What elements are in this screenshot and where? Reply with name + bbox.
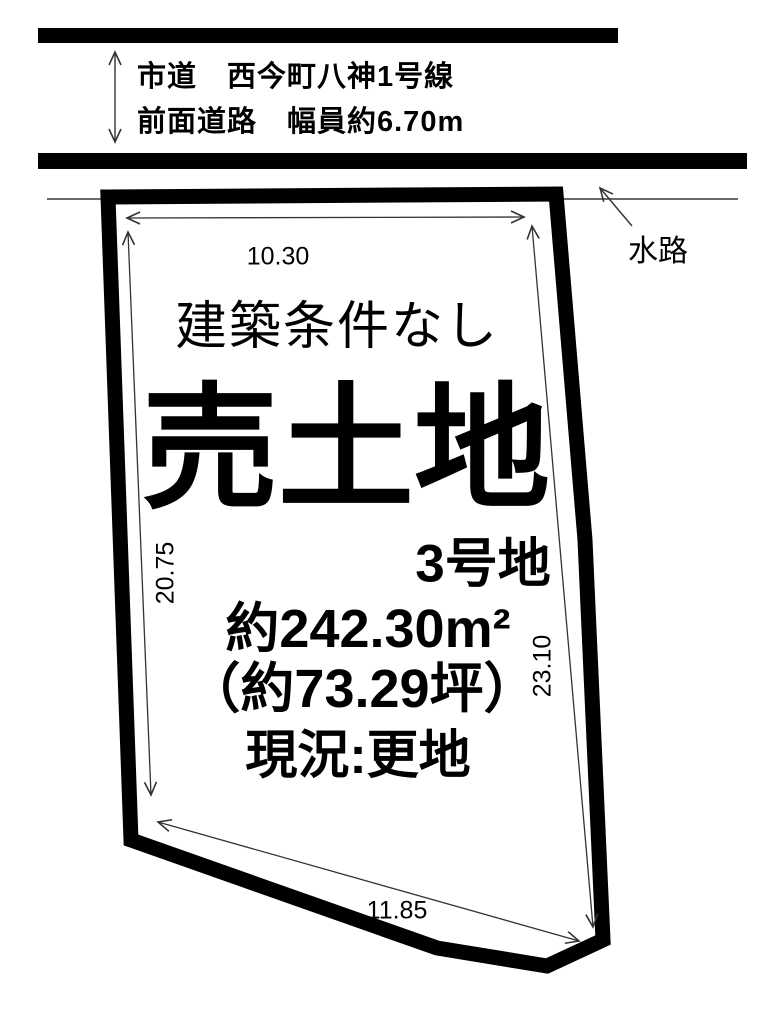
area-square-meters-text: 約242.30m² [225, 602, 510, 656]
road-name-label: 市道 西今町八神1号線 [137, 63, 454, 92]
dim-label-left: 20.75 [154, 542, 179, 605]
road-edge-bar-bottom [38, 153, 747, 169]
waterway-label: 水路 [628, 237, 688, 267]
area-tsubo-text: （約73.29坪） [186, 662, 537, 716]
dim-label-bottom: 11.85 [367, 899, 428, 924]
waterway-pointer-arrow [600, 188, 632, 226]
lot-number-text: 3号地 [415, 538, 550, 591]
land-plot-diagram: 市道 西今町八神1号線 前面道路 幅員約6.70m 水路 10.30 20.75… [0, 0, 765, 1024]
sale-land-title: 売土地 [142, 381, 550, 517]
current-status-text: 現況:更地 [245, 730, 470, 782]
dim-label-top: 10.30 [247, 245, 310, 270]
road-front-width-label: 前面道路 幅員約6.70m [137, 108, 464, 137]
building-condition-text: 建築条件なし [175, 301, 499, 353]
road-edge-bar-top [38, 28, 618, 43]
